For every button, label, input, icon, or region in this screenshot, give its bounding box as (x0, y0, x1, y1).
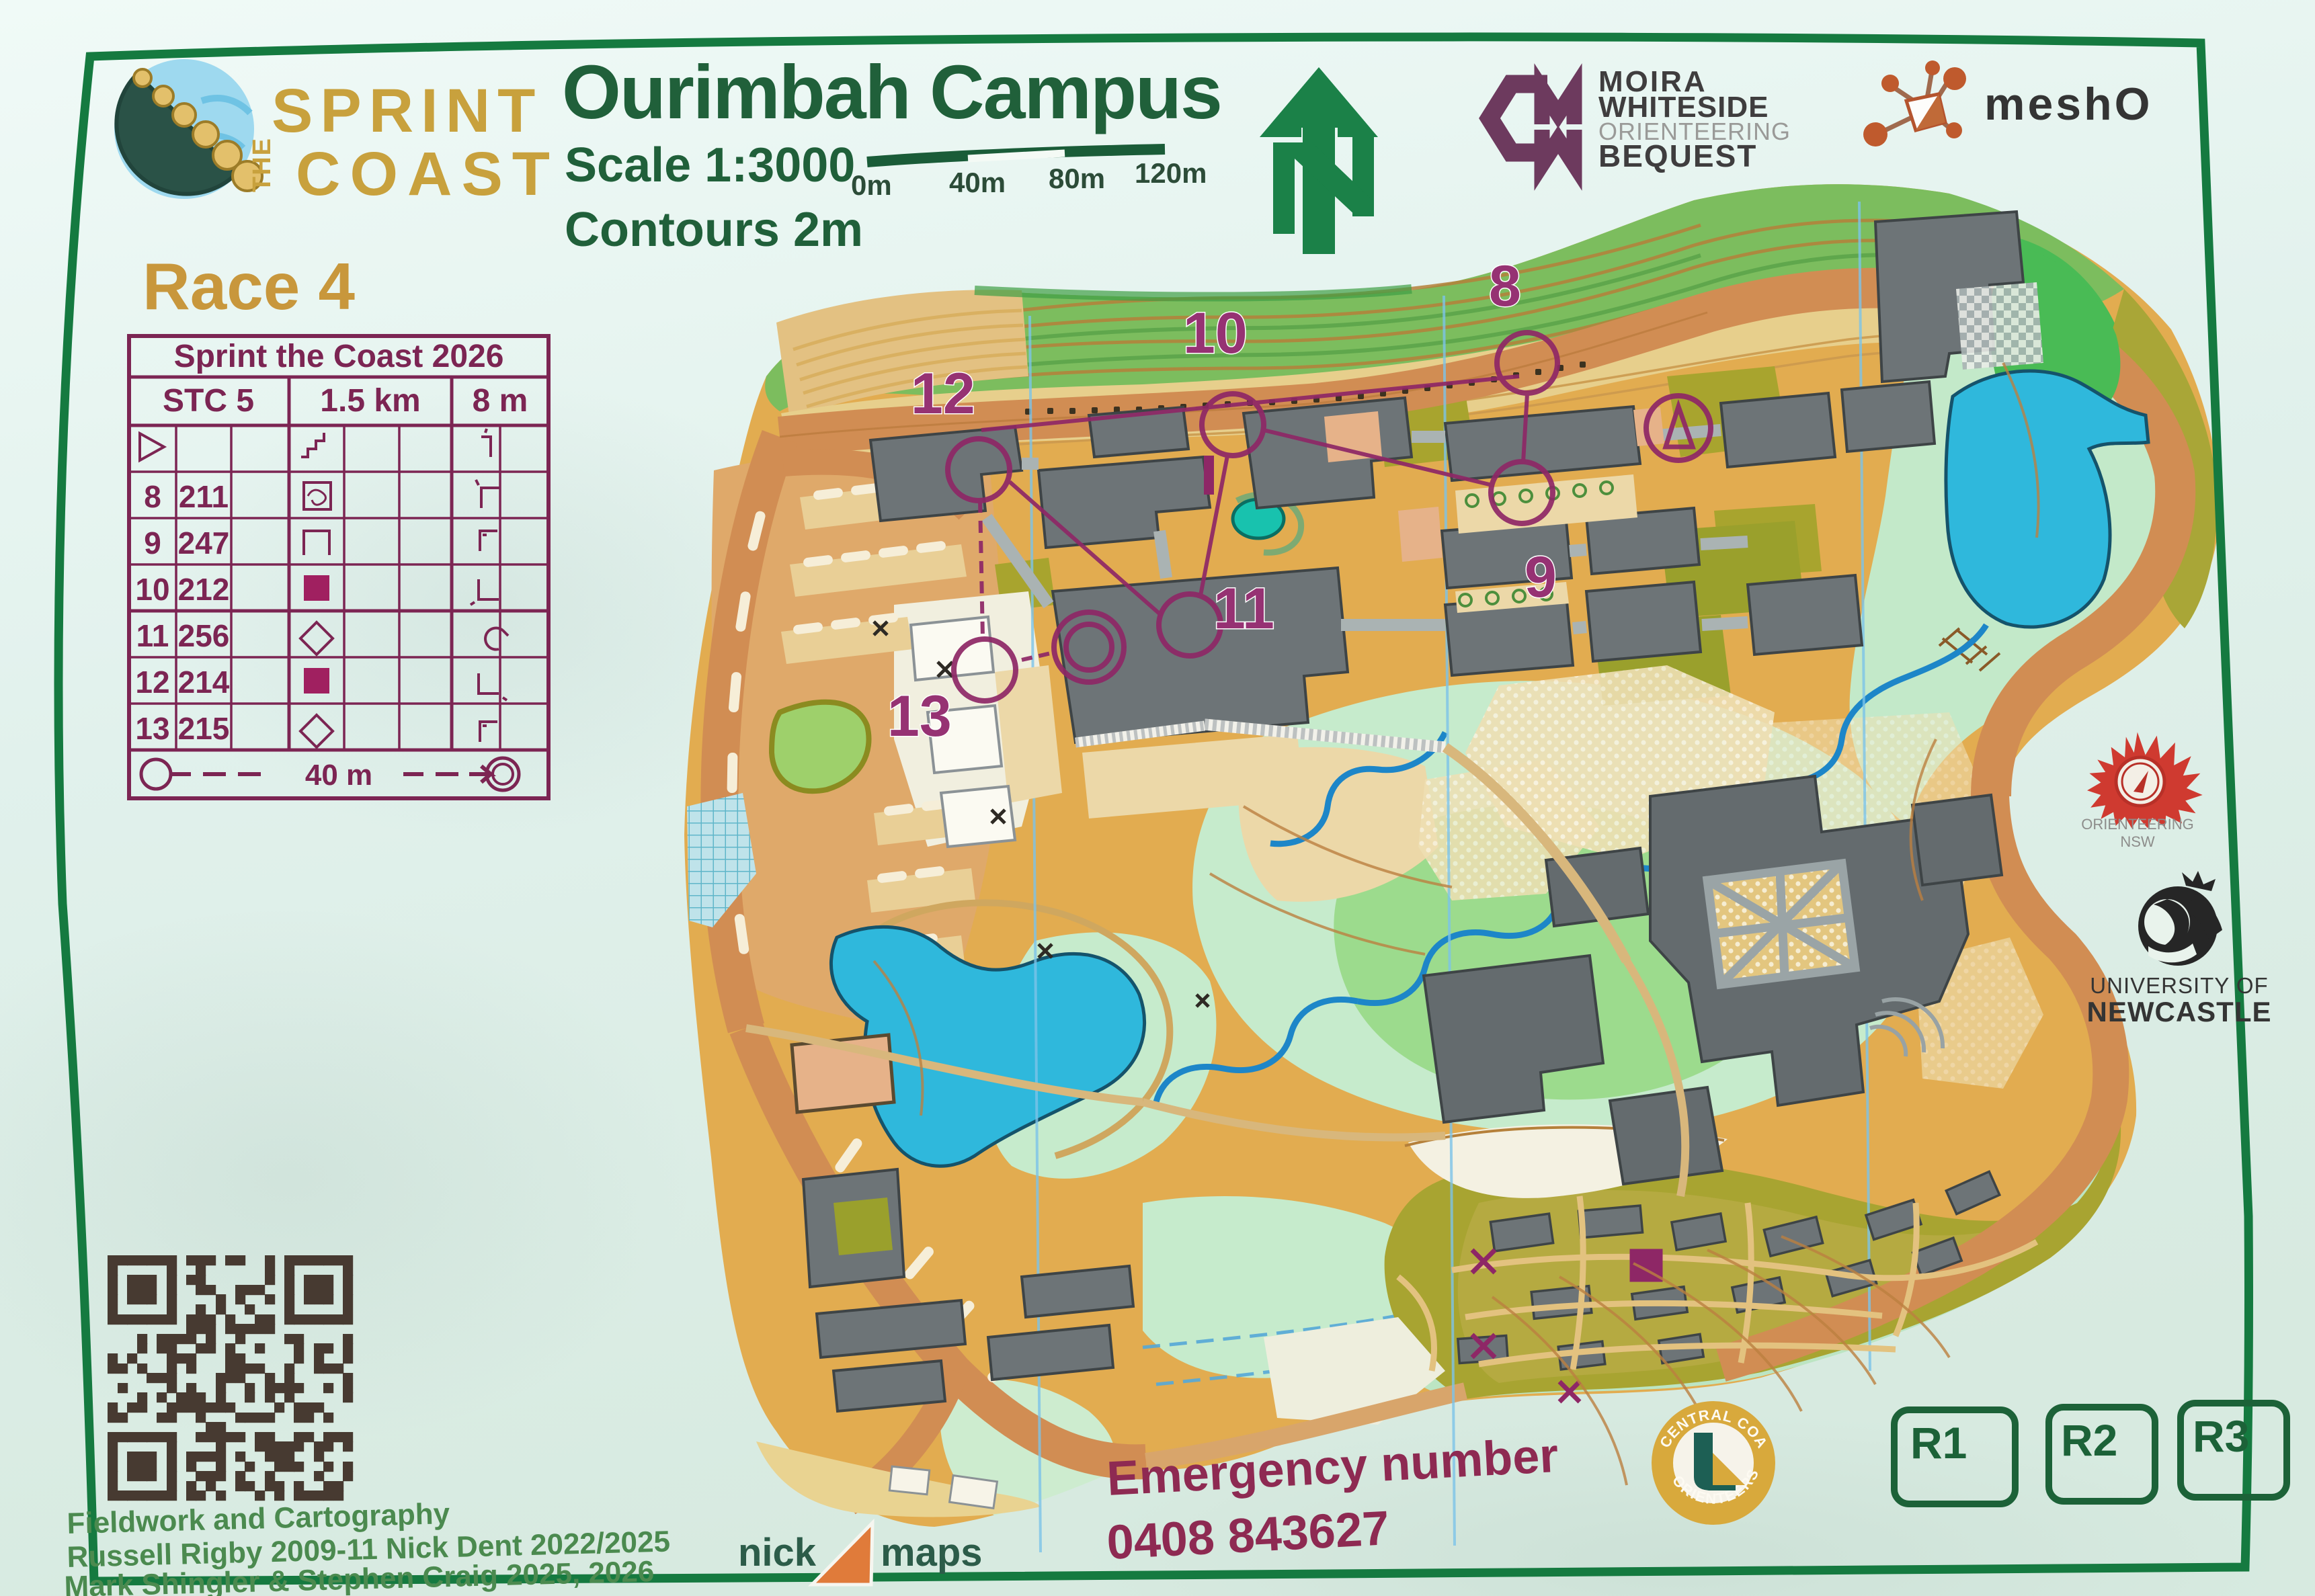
svg-text:40 m: 40 m (305, 759, 372, 792)
svg-text:R3: R3 (2193, 1411, 2249, 1461)
svg-text:R2: R2 (2061, 1415, 2117, 1465)
svg-text:11: 11 (136, 618, 169, 653)
svg-text:120m: 120m (1135, 157, 1207, 189)
svg-text:247: 247 (178, 526, 230, 560)
svg-text:Sprint the Coast 2026: Sprint the Coast 2026 (174, 339, 504, 374)
svg-text:nick: nick (738, 1531, 817, 1574)
svg-text:211: 211 (179, 479, 229, 514)
svg-text:212: 212 (178, 572, 230, 607)
svg-text:215: 215 (178, 711, 230, 746)
svg-text:Scale 1:3000: Scale 1:3000 (565, 138, 855, 192)
svg-text:8: 8 (144, 479, 161, 514)
svg-text:ORIENTEERING: ORIENTEERING (2081, 816, 2193, 833)
svg-text:11: 11 (1213, 577, 1274, 641)
svg-text:R1: R1 (1910, 1418, 1967, 1468)
svg-text:Contours 2m: Contours 2m (565, 203, 863, 257)
svg-text:UNIVERSITY OF: UNIVERSITY OF (2090, 973, 2268, 998)
svg-text:13: 13 (135, 711, 169, 746)
svg-text:80m: 80m (1049, 163, 1105, 194)
svg-text:Race 4: Race 4 (143, 249, 355, 323)
svg-text:12: 12 (911, 362, 975, 426)
svg-text:Ourimbah Campus: Ourimbah Campus (562, 50, 1221, 134)
svg-text:214: 214 (178, 665, 230, 700)
svg-text:COAST: COAST (296, 140, 559, 208)
svg-text:9: 9 (144, 526, 161, 560)
svg-text:1.5 km: 1.5 km (320, 383, 420, 419)
svg-text:meshO: meshO (1984, 79, 2153, 130)
svg-text:STC 5: STC 5 (163, 383, 254, 419)
svg-text:0m: 0m (851, 169, 892, 201)
svg-text:BEQUEST: BEQUEST (1598, 138, 1757, 173)
svg-text:NSW: NSW (2120, 833, 2155, 850)
svg-text:SPRINT: SPRINT (272, 77, 542, 145)
svg-text:NEWCASTLE: NEWCASTLE (2087, 996, 2272, 1027)
svg-text:40m: 40m (949, 167, 1006, 198)
svg-text:9: 9 (1525, 545, 1557, 610)
svg-text:10: 10 (1183, 301, 1248, 366)
svg-text:THE: THE (248, 137, 276, 192)
svg-text:8 m: 8 m (473, 383, 528, 419)
svg-text:maps: maps (881, 1531, 983, 1574)
svg-text:256: 256 (178, 618, 230, 653)
svg-text:8: 8 (1489, 254, 1521, 319)
svg-text:13: 13 (887, 684, 952, 749)
svg-text:12: 12 (135, 665, 169, 700)
svg-text:10: 10 (135, 572, 169, 607)
